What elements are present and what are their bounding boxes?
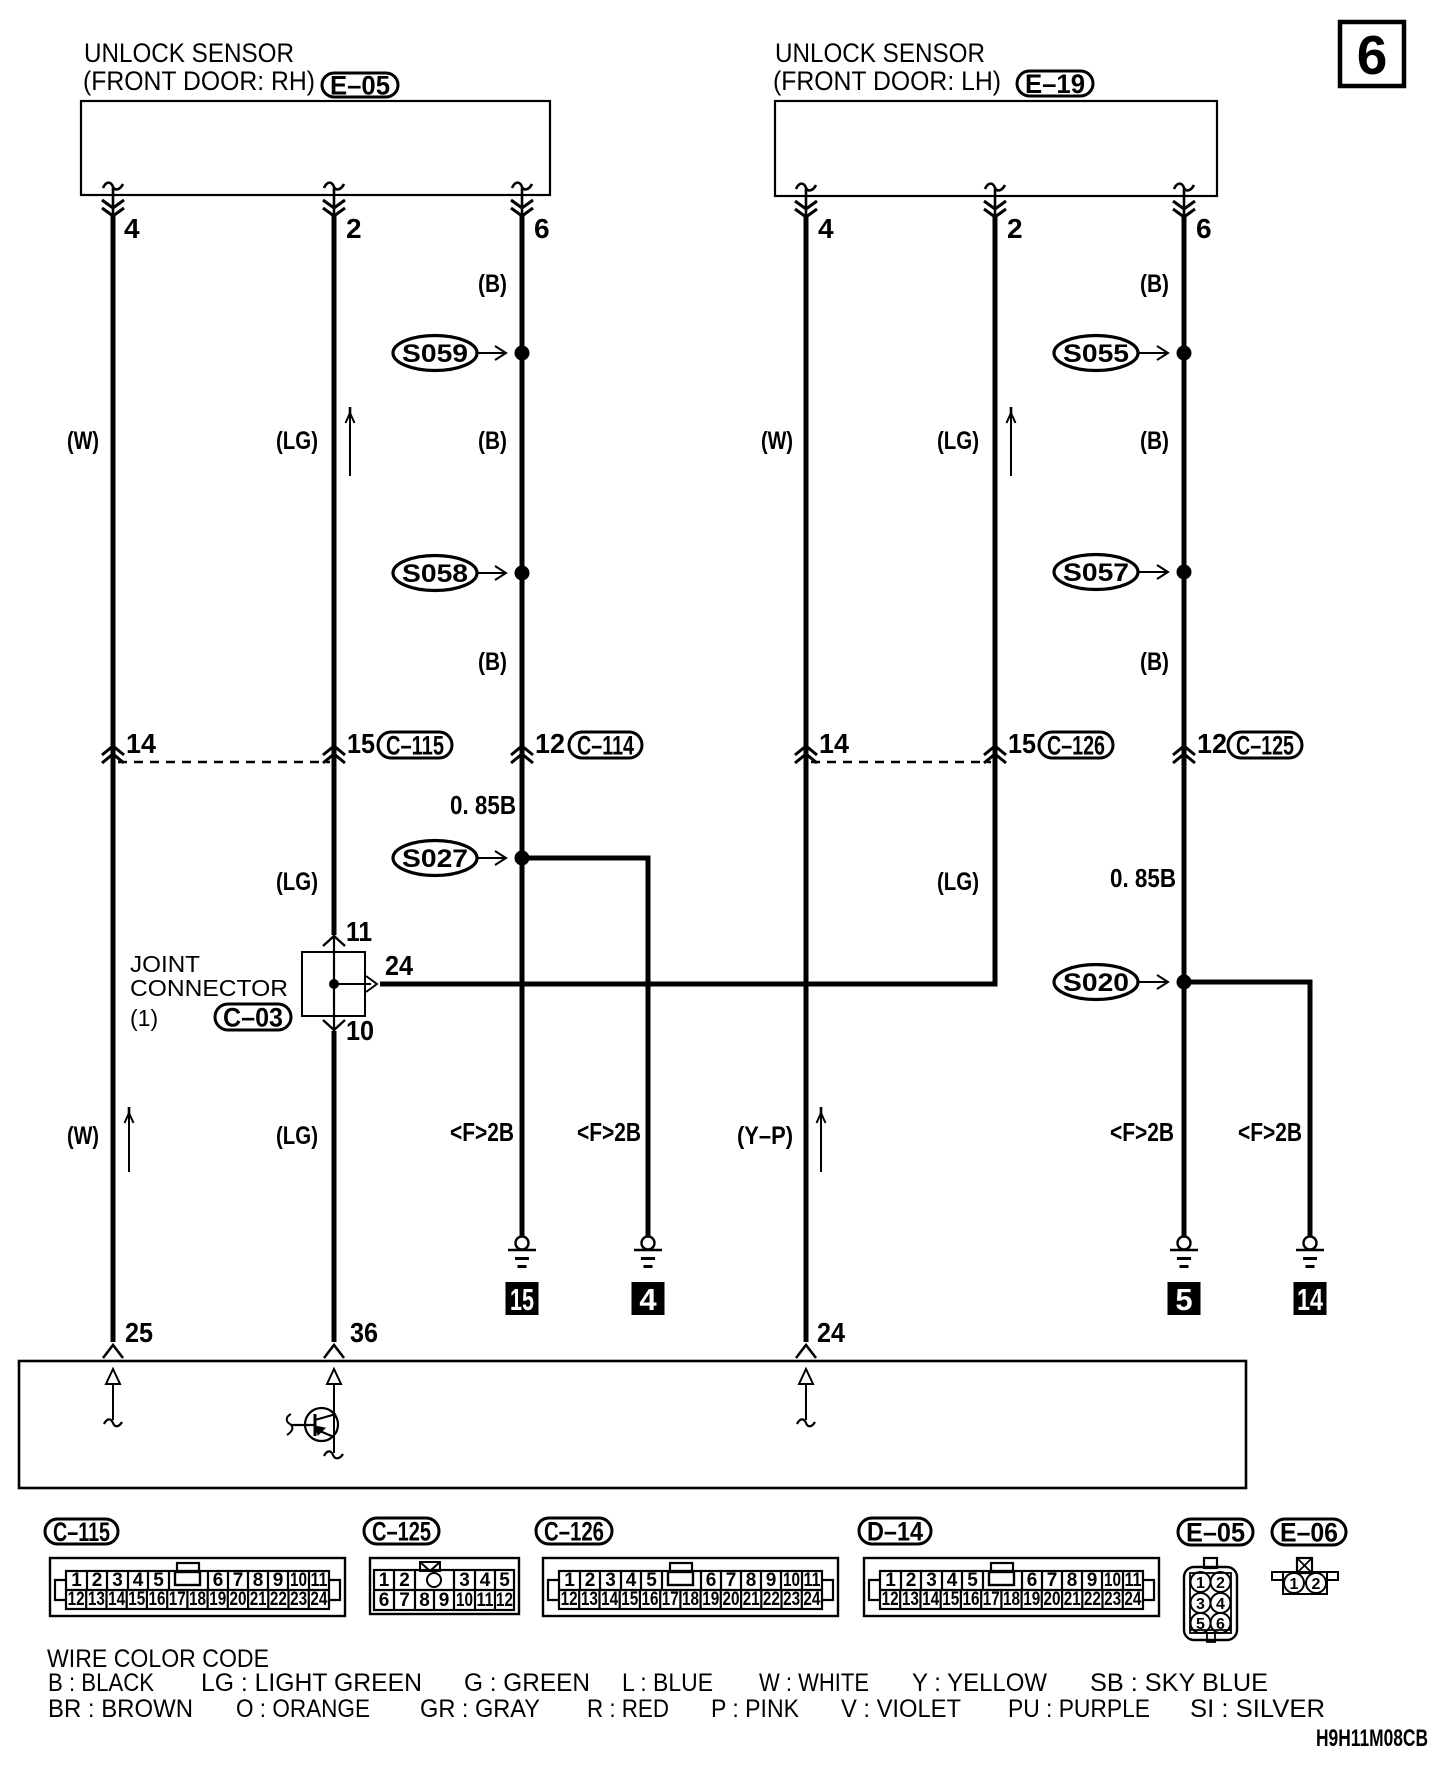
svg-text:(LG): (LG)	[276, 427, 318, 455]
svg-text:GR : GRAY: GR : GRAY	[420, 1695, 540, 1723]
svg-text:14: 14	[108, 1589, 125, 1610]
svg-text:W : WHITE: W : WHITE	[759, 1669, 869, 1697]
svg-text:(B): (B)	[1140, 427, 1169, 455]
svg-text:(Y–P): (Y–P)	[737, 1122, 793, 1150]
svg-text:2: 2	[906, 1570, 917, 1591]
svg-text:(LG): (LG)	[937, 427, 979, 455]
svg-text:SI : SILVER: SI : SILVER	[1190, 1695, 1325, 1723]
svg-text:24: 24	[803, 1589, 820, 1610]
svg-text:4: 4	[124, 213, 140, 244]
svg-text:UNLOCK SENSOR: UNLOCK SENSOR	[84, 38, 294, 68]
svg-text:4: 4	[480, 1570, 491, 1591]
svg-text:B : BLACK: B : BLACK	[48, 1669, 154, 1697]
svg-text:7: 7	[1047, 1570, 1058, 1591]
svg-text:10: 10	[290, 1570, 307, 1591]
svg-text:22: 22	[1084, 1589, 1101, 1610]
svg-text:1: 1	[1290, 1576, 1299, 1593]
svg-text:(FRONT DOOR: RH): (FRONT DOOR: RH)	[83, 66, 315, 96]
svg-text:23: 23	[1104, 1589, 1121, 1610]
svg-text:17: 17	[169, 1589, 186, 1610]
svg-text:2: 2	[1312, 1576, 1321, 1593]
svg-text:3: 3	[112, 1570, 123, 1591]
svg-text:R : RED: R : RED	[587, 1695, 669, 1723]
svg-text:6: 6	[1027, 1570, 1038, 1591]
svg-text:12: 12	[882, 1589, 899, 1610]
svg-text:9: 9	[1087, 1570, 1098, 1591]
svg-text:V : VIOLET: V : VIOLET	[841, 1695, 961, 1723]
svg-text:(LG): (LG)	[937, 868, 979, 896]
svg-text:11: 11	[477, 1590, 494, 1611]
svg-text:8: 8	[746, 1570, 757, 1591]
svg-text:24: 24	[310, 1589, 327, 1610]
svg-text:<F>2B: <F>2B	[1110, 1117, 1174, 1147]
svg-text:C–125: C–125	[372, 1517, 431, 1547]
svg-text:10: 10	[346, 1015, 374, 1046]
svg-text:5: 5	[967, 1570, 978, 1591]
svg-text:C–03: C–03	[223, 1003, 283, 1033]
svg-text:20: 20	[722, 1589, 739, 1610]
svg-text:CONNECTOR: CONNECTOR	[130, 975, 288, 1001]
svg-text:(B): (B)	[1140, 648, 1169, 676]
svg-text:O : ORANGE: O : ORANGE	[236, 1695, 370, 1723]
svg-text:(W): (W)	[67, 427, 99, 455]
svg-text:4: 4	[626, 1570, 637, 1591]
svg-text:22: 22	[270, 1589, 287, 1610]
svg-text:15: 15	[621, 1589, 638, 1610]
svg-text:11: 11	[346, 916, 372, 947]
svg-text:C–115: C–115	[386, 731, 444, 761]
svg-text:S059: S059	[402, 340, 468, 368]
svg-text:5: 5	[153, 1570, 164, 1591]
svg-text:9: 9	[439, 1590, 450, 1611]
svg-text:12: 12	[561, 1589, 578, 1610]
svg-text:H9H11M08CB: H9H11M08CB	[1316, 1725, 1428, 1752]
svg-text:2: 2	[585, 1570, 596, 1591]
svg-text:6: 6	[213, 1570, 224, 1591]
svg-text:E–05: E–05	[1186, 1518, 1245, 1548]
svg-text:(B): (B)	[478, 427, 507, 455]
svg-text:E–19: E–19	[1025, 69, 1085, 99]
svg-text:0. 85B: 0. 85B	[450, 790, 516, 820]
svg-text:1: 1	[564, 1570, 575, 1591]
svg-text:0. 85B: 0. 85B	[1110, 863, 1176, 893]
svg-text:6: 6	[706, 1570, 717, 1591]
svg-text:12: 12	[496, 1590, 513, 1611]
svg-text:9: 9	[273, 1570, 284, 1591]
svg-text:17: 17	[662, 1589, 679, 1610]
svg-text:14: 14	[601, 1589, 618, 1610]
svg-text:10: 10	[1104, 1570, 1121, 1591]
svg-text:8: 8	[1067, 1570, 1078, 1591]
svg-text:(FRONT DOOR: LH): (FRONT DOOR: LH)	[773, 66, 1001, 96]
svg-text:C–114: C–114	[577, 731, 634, 761]
svg-text:S027: S027	[402, 845, 468, 873]
svg-text:15: 15	[510, 1282, 534, 1317]
svg-text:25: 25	[125, 1317, 153, 1348]
svg-text:1: 1	[71, 1570, 82, 1591]
svg-text:1: 1	[379, 1570, 390, 1591]
svg-text:4: 4	[1216, 1596, 1225, 1613]
svg-text:1: 1	[1196, 1575, 1205, 1592]
svg-text:6: 6	[379, 1590, 390, 1611]
svg-text:2: 2	[92, 1570, 103, 1591]
svg-text:3: 3	[605, 1570, 616, 1591]
svg-text:2: 2	[1007, 213, 1023, 244]
svg-text:4: 4	[947, 1570, 958, 1591]
svg-text:5: 5	[1175, 1282, 1192, 1317]
svg-text:E–05: E–05	[330, 71, 390, 101]
svg-text:JOINT: JOINT	[130, 951, 200, 977]
svg-text:17: 17	[983, 1589, 1000, 1610]
svg-text:5: 5	[499, 1570, 510, 1591]
svg-text:3: 3	[926, 1570, 937, 1591]
svg-text:<F>2B: <F>2B	[577, 1117, 641, 1147]
svg-text:(1): (1)	[130, 1005, 158, 1031]
svg-text:15: 15	[942, 1589, 959, 1610]
svg-text:19: 19	[209, 1589, 226, 1610]
svg-text:(W): (W)	[67, 1122, 99, 1150]
svg-text:7: 7	[399, 1590, 410, 1611]
svg-text:15: 15	[347, 728, 375, 759]
svg-text:S057: S057	[1063, 559, 1129, 587]
svg-text:6: 6	[1357, 24, 1388, 86]
svg-text:SB : SKY BLUE: SB : SKY BLUE	[1090, 1669, 1268, 1697]
svg-text:10: 10	[783, 1570, 800, 1591]
svg-text:C–126: C–126	[1047, 731, 1105, 761]
svg-text:(B): (B)	[478, 648, 507, 676]
svg-text:21: 21	[250, 1589, 267, 1610]
svg-text:3: 3	[1196, 1596, 1205, 1613]
svg-text:UNLOCK SENSOR: UNLOCK SENSOR	[775, 38, 985, 68]
svg-text:E–06: E–06	[1280, 1518, 1338, 1548]
svg-text:(W): (W)	[761, 427, 793, 455]
svg-text:2: 2	[346, 213, 362, 244]
svg-text:2: 2	[399, 1570, 410, 1591]
svg-text:14: 14	[922, 1589, 939, 1610]
svg-text:23: 23	[783, 1589, 800, 1610]
svg-text:G : GREEN: G : GREEN	[464, 1669, 590, 1697]
svg-text:12: 12	[535, 728, 565, 759]
svg-text:(LG): (LG)	[276, 868, 318, 896]
svg-text:(B): (B)	[478, 270, 507, 298]
svg-text:23: 23	[290, 1589, 307, 1610]
svg-text:11: 11	[1125, 1570, 1142, 1591]
svg-text:36: 36	[350, 1317, 378, 1348]
svg-text:5: 5	[646, 1570, 657, 1591]
svg-text:6: 6	[1196, 213, 1212, 244]
svg-text:4: 4	[133, 1570, 144, 1591]
svg-text:2: 2	[1216, 1575, 1225, 1592]
svg-text:3: 3	[459, 1570, 470, 1591]
svg-text:24: 24	[1124, 1589, 1141, 1610]
svg-text:19: 19	[702, 1589, 719, 1610]
svg-text:24: 24	[817, 1317, 845, 1348]
svg-text:<F>2B: <F>2B	[450, 1117, 514, 1147]
svg-text:13: 13	[88, 1589, 105, 1610]
svg-text:C–115: C–115	[53, 1517, 110, 1547]
svg-text:1: 1	[885, 1570, 896, 1591]
svg-text:16: 16	[642, 1589, 659, 1610]
svg-text:C–125: C–125	[1236, 731, 1294, 761]
svg-text:LG : LIGHT GREEN: LG : LIGHT GREEN	[201, 1669, 422, 1697]
svg-text:(B): (B)	[1140, 270, 1169, 298]
svg-text:21: 21	[743, 1589, 760, 1610]
svg-text:20: 20	[229, 1589, 246, 1610]
svg-text:15: 15	[128, 1589, 145, 1610]
svg-text:8: 8	[419, 1590, 430, 1611]
svg-text:8: 8	[253, 1570, 264, 1591]
svg-text:13: 13	[581, 1589, 598, 1610]
svg-text:L : BLUE: L : BLUE	[622, 1669, 713, 1697]
svg-text:15: 15	[1008, 728, 1036, 759]
svg-text:7: 7	[726, 1570, 737, 1591]
svg-text:13: 13	[902, 1589, 919, 1610]
svg-text:24: 24	[385, 950, 413, 981]
svg-text:Y : YELLOW: Y : YELLOW	[912, 1669, 1047, 1697]
svg-text:<F>2B: <F>2B	[1238, 1117, 1302, 1147]
svg-text:9: 9	[766, 1570, 777, 1591]
svg-text:14: 14	[126, 728, 156, 759]
svg-text:20: 20	[1043, 1589, 1060, 1610]
svg-text:14: 14	[1297, 1282, 1324, 1317]
svg-text:12: 12	[1197, 728, 1227, 759]
svg-text:BR : BROWN: BR : BROWN	[48, 1695, 193, 1723]
svg-text:6: 6	[534, 213, 550, 244]
svg-text:10: 10	[456, 1590, 473, 1611]
svg-text:16: 16	[963, 1589, 980, 1610]
svg-text:S020: S020	[1063, 969, 1129, 997]
svg-text:11: 11	[311, 1570, 328, 1591]
svg-text:(LG): (LG)	[276, 1122, 318, 1150]
svg-text:16: 16	[149, 1589, 166, 1610]
svg-text:18: 18	[682, 1589, 699, 1610]
svg-text:D–14: D–14	[867, 1517, 923, 1547]
svg-text:19: 19	[1023, 1589, 1040, 1610]
svg-text:C–126: C–126	[544, 1517, 604, 1547]
svg-text:22: 22	[763, 1589, 780, 1610]
svg-text:18: 18	[1003, 1589, 1020, 1610]
svg-text:14: 14	[819, 728, 849, 759]
svg-text:4: 4	[818, 213, 834, 244]
svg-text:12: 12	[68, 1589, 85, 1610]
svg-text:S058: S058	[402, 560, 468, 588]
svg-text:4: 4	[639, 1282, 657, 1317]
svg-text:21: 21	[1064, 1589, 1081, 1610]
svg-text:18: 18	[189, 1589, 206, 1610]
svg-text:11: 11	[804, 1570, 821, 1591]
svg-text:S055: S055	[1063, 340, 1129, 368]
svg-text:P : PINK: P : PINK	[711, 1695, 799, 1723]
svg-text:PU : PURPLE: PU : PURPLE	[1008, 1695, 1150, 1723]
svg-text:7: 7	[233, 1570, 244, 1591]
